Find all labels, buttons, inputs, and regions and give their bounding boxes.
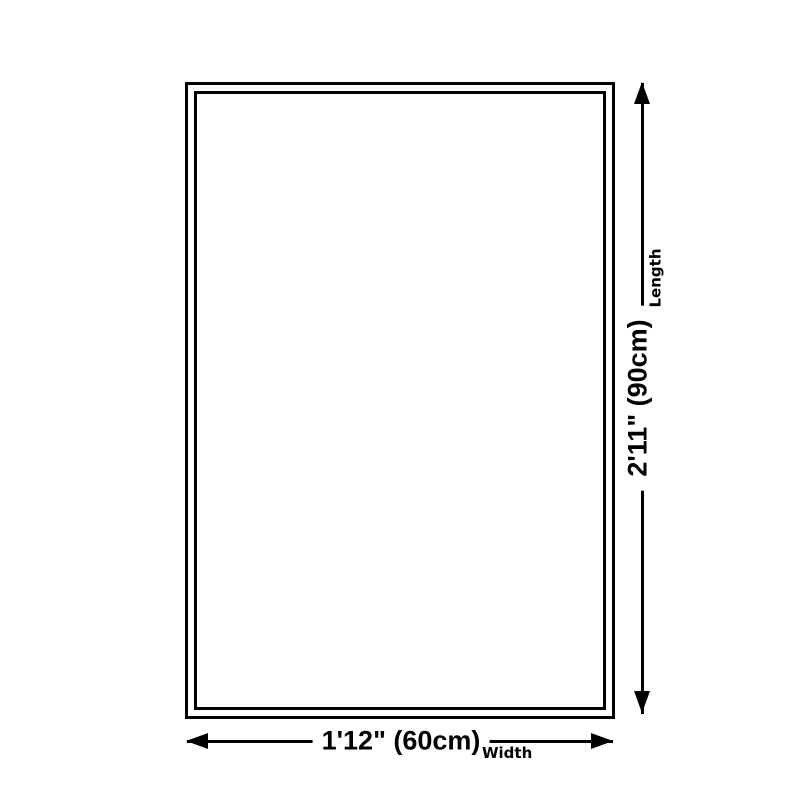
arrowhead-right-icon: [591, 733, 613, 749]
rug-outline: [185, 82, 615, 719]
arrowhead-down-icon: [634, 691, 650, 713]
rug-outline-inner: [194, 91, 606, 710]
width-label: Width: [482, 746, 532, 761]
arrowhead-left-icon: [186, 733, 208, 749]
length-value: 2'11" (90cm): [622, 305, 653, 490]
length-label: Length: [649, 249, 664, 308]
arrowhead-up-icon: [634, 82, 650, 104]
width-value: 1'12" (60cm): [313, 725, 490, 756]
dimension-diagram: 1'12" (60cm) Width 2'11" (90cm) Length: [0, 0, 800, 800]
